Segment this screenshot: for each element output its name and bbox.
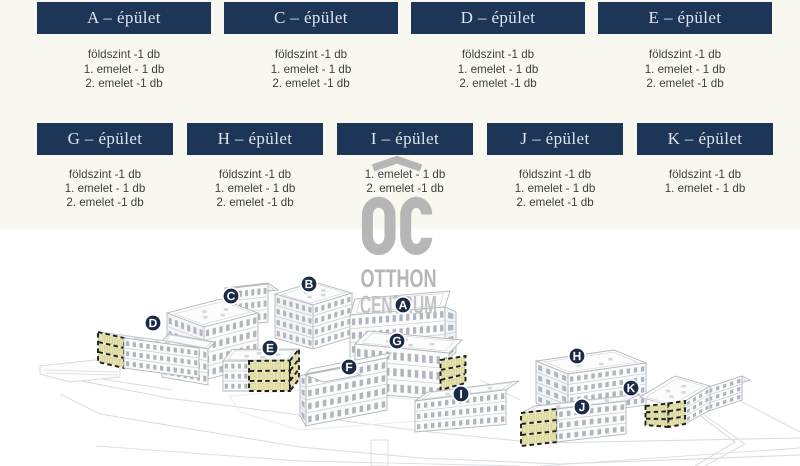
svg-text:OTTHON: OTTHON bbox=[360, 265, 436, 293]
svg-text:B: B bbox=[305, 277, 314, 291]
svg-text:H: H bbox=[573, 349, 582, 363]
svg-text:G: G bbox=[392, 334, 401, 348]
svg-text:K: K bbox=[627, 381, 636, 395]
svg-text:C: C bbox=[227, 289, 236, 303]
svg-text:E: E bbox=[266, 341, 274, 355]
svg-text:A: A bbox=[399, 298, 408, 312]
svg-text:F: F bbox=[345, 360, 352, 374]
svg-text:J: J bbox=[579, 400, 586, 414]
svg-text:I: I bbox=[459, 387, 462, 401]
svg-text:D: D bbox=[149, 316, 158, 330]
